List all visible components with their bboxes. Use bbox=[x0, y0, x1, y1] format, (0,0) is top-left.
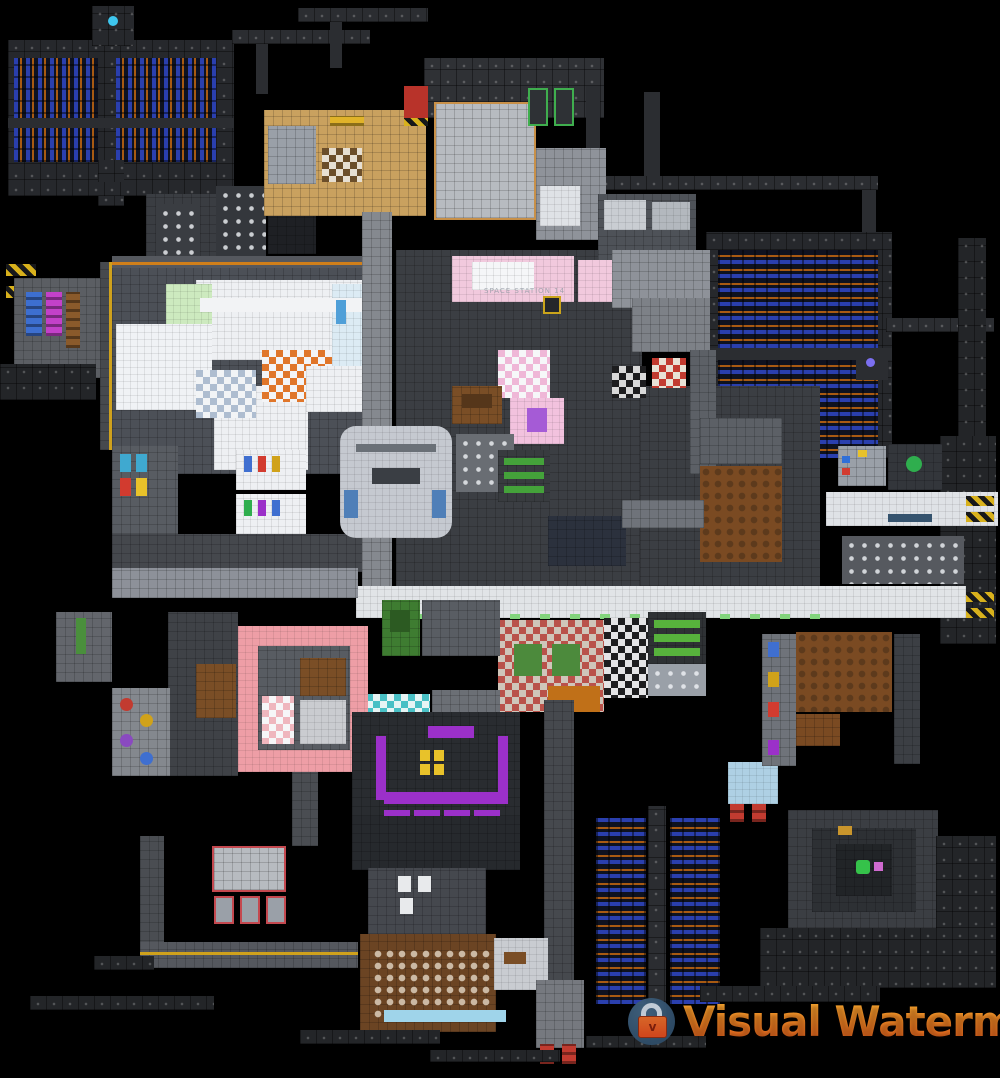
pink-hall-inner bbox=[472, 262, 534, 290]
hazard-pad-bridge bbox=[543, 296, 561, 314]
top-corridor-c bbox=[298, 8, 428, 22]
hydro-row-b bbox=[504, 472, 544, 479]
casino-table-blue bbox=[140, 752, 153, 765]
hydro-row-c bbox=[504, 486, 544, 493]
kitchen-west-strip bbox=[76, 618, 86, 654]
evac-hazard-a bbox=[966, 496, 994, 506]
west-crates-magenta bbox=[46, 292, 62, 336]
dorm-bed-d bbox=[244, 500, 252, 516]
cargo-sorting-room bbox=[268, 126, 316, 184]
ne-room-white bbox=[604, 200, 646, 230]
south-plate-a bbox=[352, 816, 520, 870]
hydro-cafe-row-b bbox=[654, 634, 700, 642]
power-machine-a bbox=[398, 876, 411, 892]
theater-plant bbox=[390, 610, 410, 632]
west-ladder bbox=[66, 292, 80, 348]
east-edge-lattice bbox=[958, 238, 986, 438]
medbay-surgery-room bbox=[306, 366, 362, 412]
padlock-badge: v bbox=[628, 998, 675, 1045]
sat-lattice-south bbox=[760, 928, 996, 988]
ne-room-gray bbox=[652, 202, 690, 230]
casino-table-gold bbox=[140, 714, 153, 727]
south-dock-red-b bbox=[752, 802, 766, 822]
nw-solar-panels-east bbox=[116, 58, 216, 162]
bar-east-annex bbox=[796, 714, 840, 746]
evac-hazard-d bbox=[966, 608, 994, 618]
evac-hazard-c bbox=[966, 592, 994, 602]
cargo-dock-hazard bbox=[404, 118, 428, 126]
central-corridor-north bbox=[362, 212, 392, 428]
range-room bbox=[212, 846, 286, 892]
sw-lattice-a bbox=[94, 956, 154, 970]
bar-checker-floor bbox=[604, 618, 648, 698]
bar-main bbox=[700, 466, 782, 562]
range-cell-c bbox=[266, 896, 286, 924]
west-arm-upper bbox=[8, 182, 124, 196]
checkpoint-light-blue bbox=[842, 456, 850, 463]
east-corridor-mid bbox=[622, 500, 704, 528]
bridge-console-dais bbox=[372, 468, 420, 484]
courtroom-table bbox=[462, 394, 492, 408]
dorm-col-bed-red bbox=[768, 702, 779, 717]
south-lattice-b bbox=[430, 1050, 560, 1062]
casino-table-purple bbox=[120, 734, 133, 747]
science-checker-red bbox=[652, 358, 686, 388]
station-map: SPACE STATION 14 v Visual Watermark bbox=[0, 0, 1000, 1078]
west-corridor bbox=[112, 568, 358, 598]
aisat-core-green bbox=[856, 860, 870, 874]
pink-checker-room bbox=[498, 350, 550, 398]
padlock-icon: v bbox=[638, 1016, 667, 1038]
vault-navy bbox=[548, 516, 626, 566]
sw-corridor-horizontal bbox=[140, 942, 358, 968]
aisat-device-pink bbox=[874, 862, 883, 871]
backstage bbox=[422, 600, 500, 656]
south-dock-airlock-b bbox=[562, 1044, 576, 1064]
bridge-rail-north bbox=[356, 444, 436, 452]
checkpoint-crate-yellow bbox=[858, 450, 867, 457]
watermark: v Visual Watermark bbox=[628, 997, 1000, 1046]
brig-cells-checker bbox=[262, 696, 294, 744]
chapel-altar bbox=[527, 408, 547, 432]
west-lattice-band bbox=[0, 364, 96, 400]
bar-east-floor bbox=[796, 632, 892, 712]
engineering-pa bbox=[268, 212, 316, 254]
casino-table-red bbox=[120, 698, 133, 711]
atmos-canister-yellow-d bbox=[434, 764, 444, 775]
medbay-blue-accent bbox=[336, 300, 346, 324]
east-utility-row bbox=[842, 536, 964, 584]
hydro-cafe-row-c bbox=[654, 648, 700, 656]
atmos-pipe-west bbox=[376, 736, 386, 800]
dorm-bed-e bbox=[258, 500, 266, 516]
engineering-machines bbox=[156, 204, 200, 260]
south-lattice-a bbox=[300, 1030, 440, 1044]
kitchen bbox=[648, 664, 706, 696]
nw-solar-panels-west bbox=[14, 58, 98, 162]
se-room-blue bbox=[728, 762, 778, 804]
dock-bay-green-a bbox=[528, 88, 548, 126]
ne-arm-horizontal bbox=[598, 176, 878, 190]
south-solar-east bbox=[670, 818, 720, 1004]
sw-lattice-b bbox=[30, 996, 214, 1010]
library-desk bbox=[504, 952, 526, 964]
south-dock-pad bbox=[536, 980, 584, 1048]
watermark-text: Visual Watermark bbox=[683, 997, 1000, 1046]
south-solar-spine bbox=[648, 806, 666, 1018]
cargo-bay-hall bbox=[434, 102, 536, 220]
bridge-pod-east bbox=[432, 490, 446, 518]
arrivals-white-room bbox=[540, 186, 580, 226]
library-pool bbox=[384, 1010, 506, 1022]
atmos-canister-yellow-a bbox=[420, 750, 430, 761]
medbay-foyer-checker bbox=[196, 370, 256, 418]
cargo-checker-room bbox=[322, 148, 362, 182]
east-rooms-north bbox=[700, 418, 782, 464]
power-machine-b bbox=[418, 876, 431, 892]
central-corridor-south bbox=[362, 538, 392, 588]
atmos-canister-yellow-b bbox=[434, 750, 444, 761]
cryo-pod-c bbox=[120, 478, 131, 496]
dorm-col-bed-gold bbox=[768, 672, 779, 687]
nw-solar-top-stub bbox=[92, 6, 134, 46]
east-corridor-vertical bbox=[894, 634, 920, 764]
atmos-pipe-east bbox=[498, 736, 508, 800]
top-corridor-g bbox=[644, 92, 660, 178]
south-corridor-vertical bbox=[544, 700, 574, 982]
checkpoint-light-red bbox=[842, 468, 850, 475]
nw-solar-walk-mid bbox=[8, 118, 234, 128]
cargo-dock-red bbox=[404, 86, 428, 122]
atmos-manifold bbox=[384, 792, 508, 804]
floor-label-ss14: SPACE STATION 14 bbox=[484, 288, 565, 295]
range-cell-a bbox=[214, 896, 234, 924]
evac-bench bbox=[888, 514, 932, 522]
sat-lattice-east bbox=[936, 836, 996, 928]
dorm-col-bed-purple bbox=[768, 740, 779, 755]
cafeteria-table-b bbox=[552, 644, 580, 676]
brig-south-corridor bbox=[292, 772, 318, 846]
bridge-pod-west bbox=[344, 490, 358, 518]
dorm-bed-c bbox=[272, 456, 280, 472]
medbay-wire bbox=[112, 262, 364, 265]
nw-solar-beacon bbox=[108, 16, 118, 26]
cafeteria-table-a bbox=[514, 644, 542, 676]
ne-solar-beacon bbox=[866, 358, 875, 367]
dorm-col-bed-blue bbox=[768, 642, 779, 657]
brig-cell-white bbox=[300, 700, 346, 744]
top-corridor-a bbox=[232, 30, 370, 44]
south-solar-west bbox=[596, 818, 646, 1004]
cargo-crates-yellow bbox=[330, 116, 364, 126]
aisat-crate bbox=[838, 826, 852, 835]
cryo-pod-d bbox=[136, 478, 147, 496]
lawyer-office bbox=[196, 664, 236, 718]
atmos-canister-yellow-c bbox=[420, 764, 430, 775]
science-rooms-south bbox=[632, 298, 710, 352]
hydro-cafe-row-a bbox=[654, 620, 700, 628]
west-crates-blue bbox=[26, 292, 42, 336]
brig-office-wood bbox=[300, 658, 346, 696]
dorm-bed-a bbox=[244, 456, 252, 472]
evac-hazard-b bbox=[966, 512, 994, 522]
cryo-pod-b bbox=[136, 454, 147, 472]
dorm-bed-f bbox=[272, 500, 280, 516]
range-cell-b bbox=[240, 896, 260, 924]
hydro-row-a bbox=[504, 458, 544, 465]
top-corridor-d bbox=[330, 22, 342, 68]
dorm-bed-b bbox=[258, 456, 266, 472]
mid-plate-left bbox=[112, 534, 362, 572]
dock-bay-green-b bbox=[554, 88, 574, 126]
sw-wire bbox=[140, 952, 358, 955]
ne-solar-panels-north bbox=[718, 250, 878, 348]
power-machine-c bbox=[400, 898, 413, 914]
south-dock-red-a bbox=[730, 802, 744, 822]
atmos-pipe-north bbox=[428, 726, 474, 738]
top-corridor-b bbox=[256, 44, 268, 94]
west-dock-pad-a bbox=[6, 264, 36, 276]
gravity-generator bbox=[906, 456, 922, 472]
cryo-pod-a bbox=[120, 454, 131, 472]
vault-checker bbox=[612, 366, 646, 398]
